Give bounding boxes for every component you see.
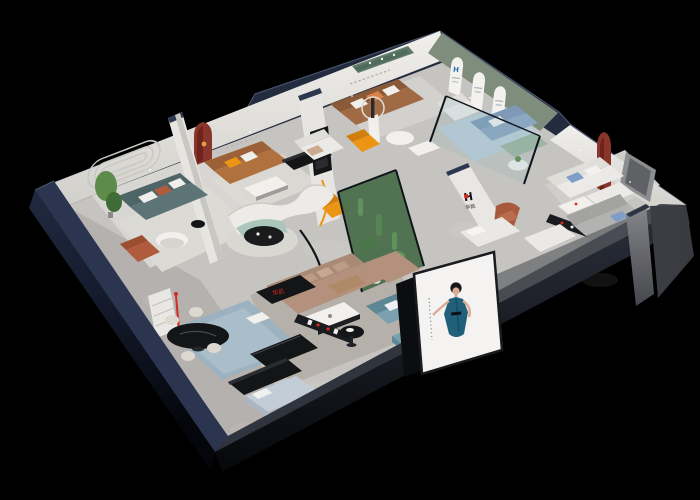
showroom-render: H: [0, 0, 700, 500]
isometric-scene: H: [0, 0, 700, 500]
vignette-overlay: [0, 0, 700, 500]
